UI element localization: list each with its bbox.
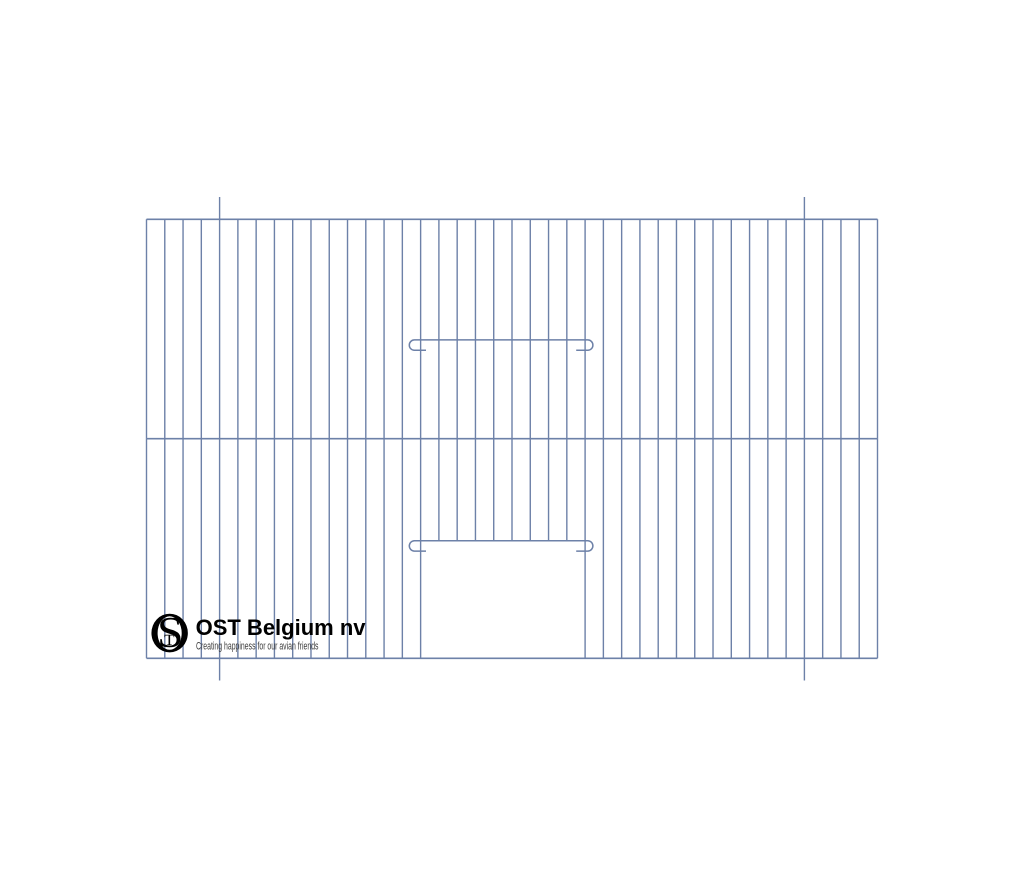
svg-text:Creating happiness for our avi: Creating happiness for our avian friends — [196, 640, 319, 652]
svg-text:OST Belgium nv: OST Belgium nv — [196, 615, 367, 640]
